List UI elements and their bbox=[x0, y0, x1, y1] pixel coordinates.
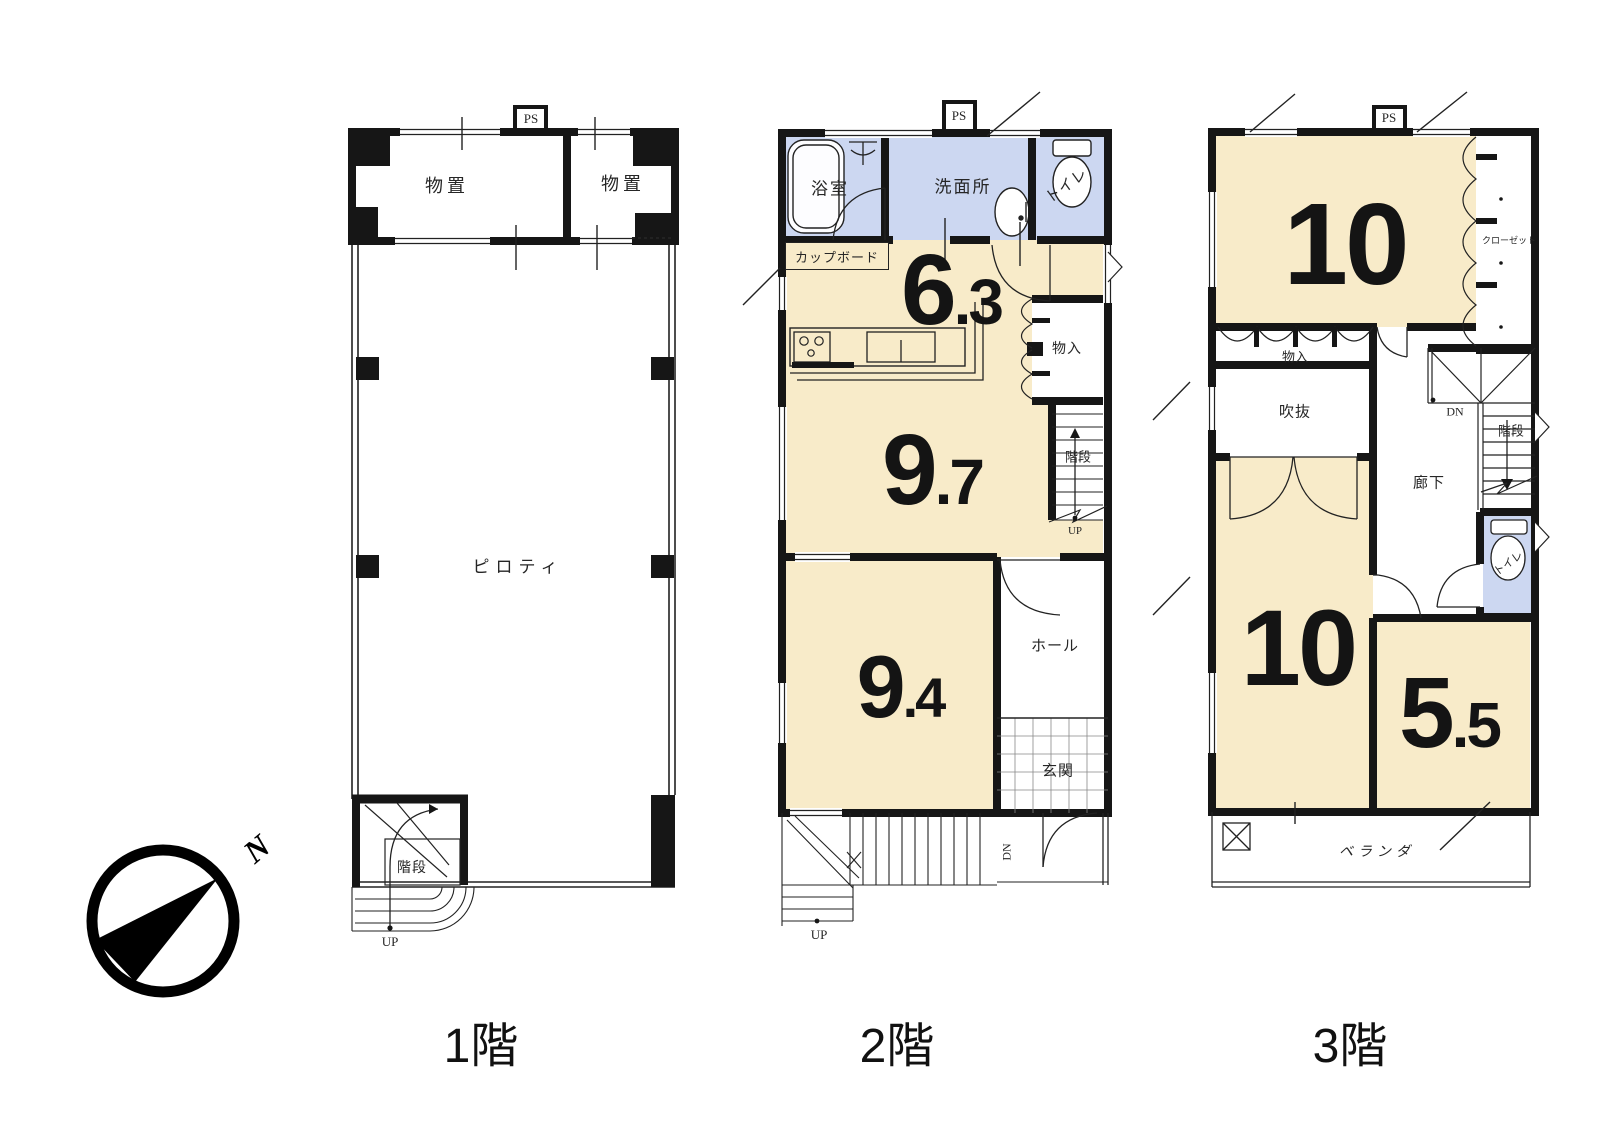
floor1-drawing bbox=[335, 95, 685, 955]
piloti-pillars bbox=[356, 357, 675, 887]
floor1-plan: PS 物置 物置 ピロティ 階段 UP bbox=[335, 95, 685, 955]
floor2-caption: 2階 bbox=[860, 1006, 935, 1076]
area-bed2-whole: 10 bbox=[1241, 594, 1355, 702]
stairs-2f bbox=[1049, 414, 1107, 522]
outside-stairs-2f bbox=[782, 813, 1108, 926]
room-label-storage-right: 物置 bbox=[601, 170, 645, 196]
area-kitchen-whole: 6 bbox=[901, 240, 954, 340]
ps-label-2f: PS bbox=[952, 108, 966, 124]
cupboard-label-box: カップボード bbox=[785, 242, 889, 270]
floor3-plan: PS 10 クローゼット 物入 吹抜 DN 階段 廊下 トイレ 10 5.5 ベ… bbox=[1145, 90, 1565, 900]
area-bed3-decimal: .5 bbox=[1452, 693, 1499, 757]
room-label-storage-left: 物置 bbox=[425, 172, 469, 198]
room-label-entrance: 玄関 bbox=[1042, 760, 1074, 781]
area-bedroom2f-decimal: .4 bbox=[903, 670, 944, 726]
up-label-1f: UP bbox=[382, 934, 399, 950]
ps-label-3f: PS bbox=[1382, 110, 1396, 126]
dn-label-3f: DN bbox=[1446, 405, 1463, 420]
room-label-stairs-3f: 階段 bbox=[1498, 421, 1524, 440]
room-label-closet-3f: クローゼット bbox=[1482, 234, 1536, 247]
area-number-living: 9.7 bbox=[882, 420, 982, 520]
room-label-bath: 浴室 bbox=[811, 175, 849, 200]
room-label-piloti: ピロティ bbox=[473, 553, 564, 578]
compass: N bbox=[80, 810, 290, 1005]
area-number-bedroom2-3f: 10 bbox=[1241, 594, 1355, 702]
floor1-caption: 1階 bbox=[444, 1006, 519, 1076]
sink-icon bbox=[995, 188, 1029, 236]
room-label-stairs-1f: 階段 bbox=[397, 857, 427, 877]
area-kitchen-decimal: .3 bbox=[954, 270, 1001, 334]
ps-label-1f: PS bbox=[524, 111, 538, 127]
room-label-veranda: ベランダ bbox=[1339, 841, 1415, 861]
floor2-plan: PS 浴室 洗面所 トイレ カップボード 6.3 物入 9.7 階段 UP 9.… bbox=[735, 90, 1145, 955]
room-label-stairs-2f: 階段 bbox=[1065, 447, 1091, 466]
wall-block bbox=[1027, 342, 1043, 356]
area-bedroom2f-whole: 9 bbox=[857, 643, 903, 731]
room-label-hall: ホール bbox=[1031, 635, 1079, 656]
area-bed3-whole: 5 bbox=[1399, 663, 1452, 763]
room-label-void: 吹抜 bbox=[1279, 401, 1311, 422]
area-living-decimal: .7 bbox=[935, 450, 982, 514]
area-number-bedroom1-3f: 10 bbox=[1283, 186, 1406, 302]
area-number-bedroom3-3f: 5.5 bbox=[1399, 663, 1499, 763]
area-living-whole: 9 bbox=[882, 420, 935, 520]
room-label-washroom: 洗面所 bbox=[935, 173, 992, 198]
room-label-closet-2f: 物入 bbox=[1052, 338, 1082, 358]
area-number-bedroom-2f: 9.4 bbox=[857, 643, 944, 731]
floor2-drawing bbox=[735, 90, 1145, 955]
room-label-storage-3f: 物入 bbox=[1282, 347, 1308, 366]
room-label-corridor: 廊下 bbox=[1413, 472, 1445, 493]
up-label-outside-2f: UP bbox=[811, 927, 828, 943]
up-label-2f: UP bbox=[1068, 525, 1082, 537]
floor3-caption: 3階 bbox=[1313, 1006, 1388, 1076]
dn-label-2f: DN bbox=[1000, 843, 1015, 860]
area-bed1-whole: 10 bbox=[1283, 186, 1406, 302]
area-number-kitchen: 6.3 bbox=[901, 240, 1001, 340]
floorplan-canvas: PS 物置 物置 ピロティ 階段 UP bbox=[0, 0, 1600, 1131]
